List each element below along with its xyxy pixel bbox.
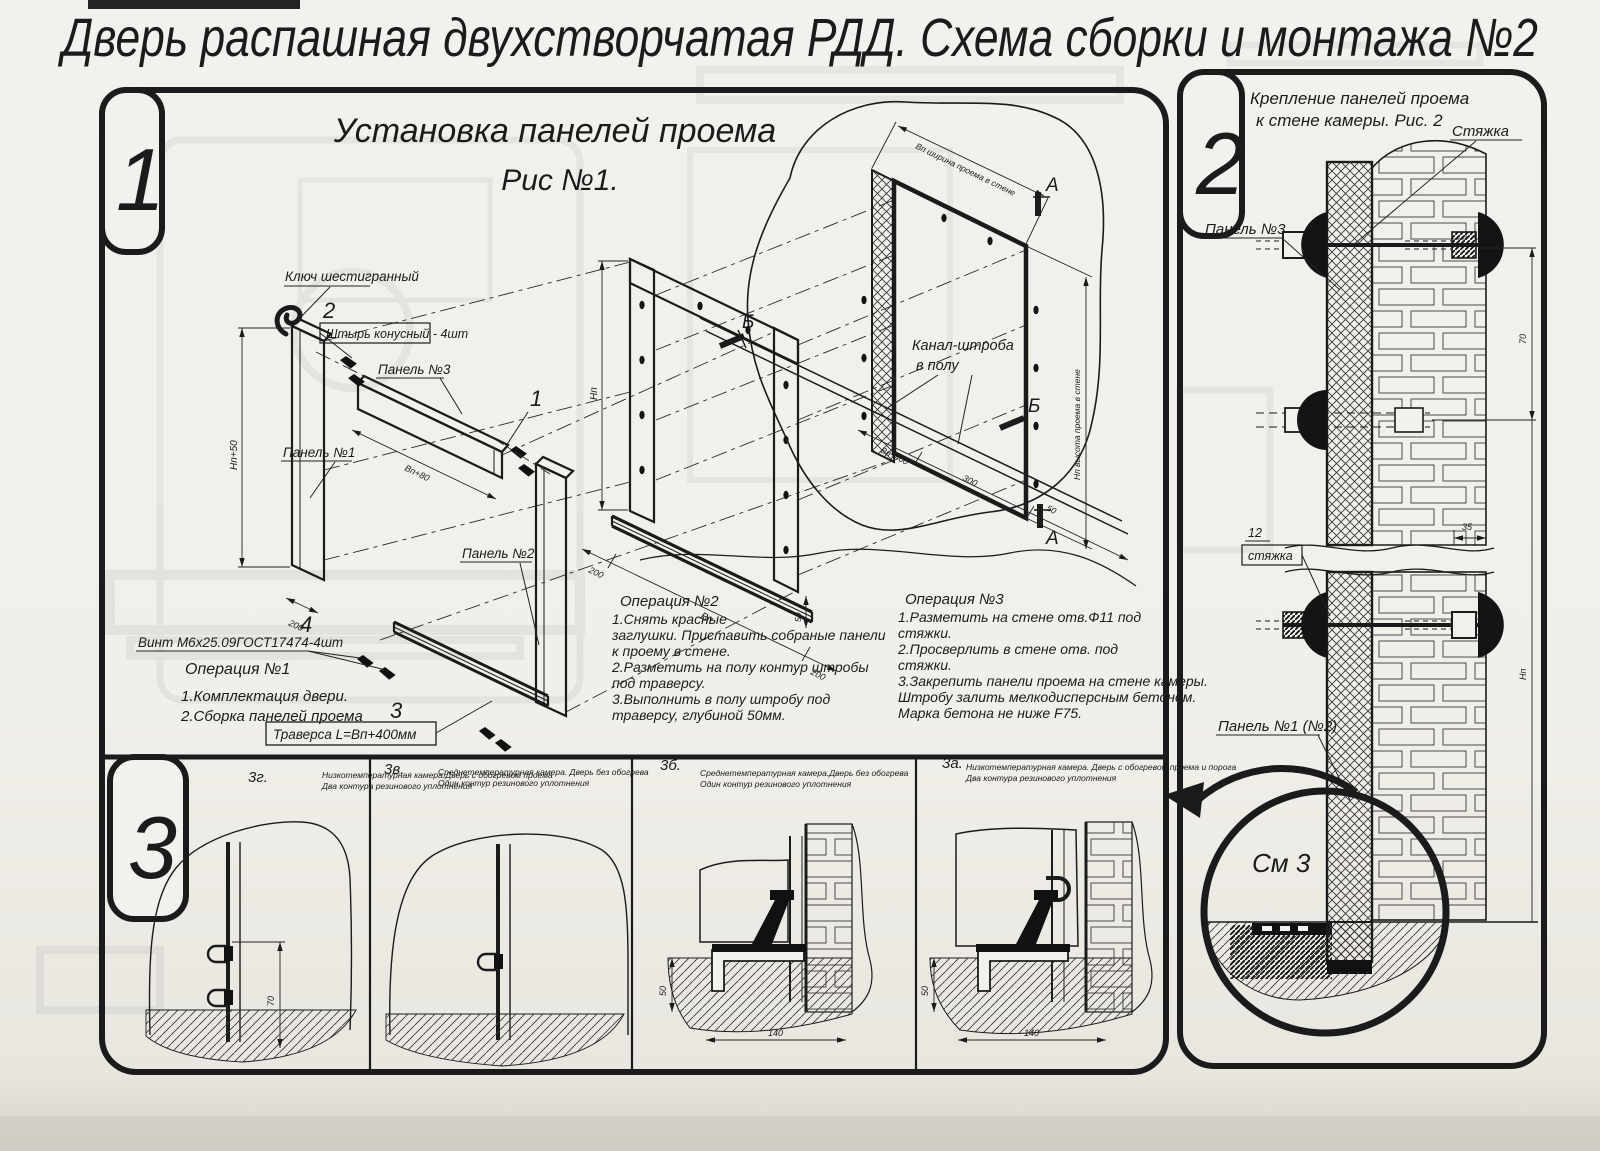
svg-text:3: 3 — [390, 698, 403, 723]
fig3-cell-b: 50 140 — [658, 824, 872, 1040]
svg-text:35: 35 — [1462, 522, 1473, 532]
svg-text:140: 140 — [1024, 1028, 1039, 1038]
fig1-subtitle: Рис №1. — [501, 164, 619, 197]
svg-text:Нп: Нп — [589, 387, 600, 400]
panel2-part — [536, 457, 573, 716]
svg-text:стяжки.: стяжки. — [898, 657, 952, 673]
floor-channel: Канал-штроба в полу — [700, 318, 1128, 534]
svg-text:2.Сборка панелей проема: 2.Сборка панелей проема — [180, 708, 363, 725]
svg-text:Стяжка: Стяжка — [1452, 123, 1509, 140]
svg-text:Штырь конусный - 4шт: Штырь конусный - 4шт — [326, 327, 468, 341]
svg-text:Винт М6х25.09ГОСТ17474-4шт: Винт М6х25.09ГОСТ17474-4шт — [138, 635, 343, 650]
operation-1-block: Операция №1 1.Комплектация двери. 2.Сбор… — [180, 661, 363, 725]
svg-text:3б.: 3б. — [660, 757, 681, 774]
marker-b2: Б — [1028, 396, 1040, 417]
svg-text:1: 1 — [116, 130, 165, 229]
svg-text:к проему в стене.: к проему в стене. — [612, 643, 731, 659]
marker-b1: Б — [742, 312, 754, 333]
svg-text:стяжки.: стяжки. — [898, 625, 952, 641]
svg-text:Операция №1: Операция №1 — [185, 661, 290, 678]
svg-text:3г.: 3г. — [248, 769, 268, 786]
svg-text:под траверсу.: под траверсу. — [612, 675, 706, 691]
svg-text:Панель №3: Панель №3 — [1205, 221, 1286, 238]
svg-text:1.Снять красные: 1.Снять красные — [612, 611, 727, 627]
svg-text:Среднетемпературная камера. Дв: Среднетемпературная камера. Дверь без об… — [438, 767, 649, 777]
fig3-headers: 3г. Низкотемпературная камера.Дверь с об… — [248, 755, 1237, 791]
svg-text:1.Комплектация двери.: 1.Комплектация двери. — [181, 688, 348, 705]
panel3-part — [358, 376, 508, 478]
svg-text:50: 50 — [793, 612, 803, 622]
svg-text:2.Просверлить в стене отв. по: 2.Просверлить в стене отв. под — [897, 641, 1118, 657]
svg-text:Операция №2: Операция №2 — [620, 593, 719, 610]
svg-text:1: 1 — [530, 386, 542, 411]
svg-text:в полу: в полу — [916, 358, 959, 374]
svg-text:стяжка: стяжка — [1248, 549, 1293, 563]
wall-opening-view: Канал-штроба в полу Вп ширина проема в с… — [640, 102, 1136, 586]
figure-3: 3г. Низкотемпературная камера.Дверь с об… — [146, 755, 1237, 1070]
svg-text:50: 50 — [920, 986, 930, 996]
figure-1-badge: 1 — [102, 90, 165, 252]
svg-text:Штробу залить мелкодисперсным: Штробу залить мелкодисперсным бетоном. — [898, 689, 1196, 705]
operation-3-block: Операция №3 1.Разметить на стене отв.Ф11… — [897, 591, 1208, 721]
svg-text:3: 3 — [128, 798, 177, 897]
svg-text:Канал-штроба: Канал-штроба — [912, 338, 1014, 354]
svg-text:3а.: 3а. — [942, 755, 963, 772]
marker-a2: А — [1045, 528, 1059, 549]
detail-arrow-head — [1164, 782, 1204, 818]
svg-text:1.Разметить на стене отв.Ф11 п: 1.Разметить на стене отв.Ф11 под — [898, 609, 1141, 625]
break-lines — [1285, 545, 1494, 575]
svg-text:12: 12 — [1248, 526, 1262, 540]
svg-text:Нп: Нп — [1518, 669, 1528, 680]
svg-text:2: 2 — [322, 298, 335, 323]
fig3-cell-v — [386, 834, 628, 1066]
fig1-title: Установка панелей проема — [333, 112, 776, 150]
svg-text:70: 70 — [266, 996, 276, 1006]
svg-text:Панель №1 (№2): Панель №1 (№2) — [1218, 718, 1337, 735]
fig3-cell-a: 50 140 — [920, 822, 1152, 1040]
svg-text:Низкотемпературная камера. Две: Низкотемпературная камера. Дверь с обогр… — [966, 762, 1237, 772]
fig2-title1: Крепление панелей проема — [1250, 89, 1469, 108]
sheet-title: Дверь распашная двухстворчатая РДД. Схем… — [58, 8, 1538, 68]
svg-text:3.Закрепить панели проема на с: 3.Закрепить панели проема на стене камер… — [898, 673, 1208, 689]
svg-text:Один контур резинового уплотне: Один контур резинового уплотнения — [700, 779, 852, 789]
svg-text:Вп ширина проема в стене: Вп ширина проема в стене — [914, 141, 1017, 198]
svg-text:Ключ шестигранный: Ключ шестигранный — [285, 269, 419, 284]
svg-text:Панель №2: Панель №2 — [462, 546, 535, 561]
svg-text:Операция №3: Операция №3 — [905, 591, 1004, 608]
svg-text:Нп высота проема в стене: Нп высота проема в стене — [1072, 369, 1082, 480]
svg-text:Панель №3: Панель №3 — [378, 362, 451, 377]
figure-2-badge: 2 — [1180, 72, 1245, 236]
svg-text:Один контур резинового уплотне: Один контур резинового уплотнения — [438, 778, 590, 788]
svg-text:траверсу, глубиной 50мм.: траверсу, глубиной 50мм. — [612, 707, 786, 723]
fig2-title2: к стене камеры. Рис. 2 — [1256, 111, 1443, 130]
marker-a1: А — [1045, 175, 1059, 196]
exploded-dims: Нп+50 200 Вп+80 — [229, 328, 496, 633]
frame-holes — [639, 301, 788, 554]
figure-2: Крепление панелей проема к стене камеры.… — [1164, 89, 1538, 1033]
svg-text:Панель №1: Панель №1 — [283, 445, 355, 460]
exploded-view: Ключ шестигранный 2 Штырь конусный - 4шт… — [136, 269, 573, 753]
svg-text:Траверса L=Bп+400мм: Траверса L=Bп+400мм — [273, 727, 416, 742]
svg-text:заглушки. Приставить собраные: заглушки. Приставить собраные панели — [611, 627, 886, 643]
svg-text:70: 70 — [1518, 334, 1528, 344]
svg-text:50: 50 — [658, 986, 668, 996]
svg-text:Два контура резинового уплотне: Два контура резинового уплотнения — [965, 773, 1117, 783]
svg-text:2: 2 — [1195, 114, 1245, 213]
svg-text:140: 140 — [768, 1028, 783, 1038]
figure-3-badge: 3 — [110, 757, 186, 919]
svg-text:Нп+50: Нп+50 — [229, 440, 240, 470]
svg-text:3.Выполнить в полу штробу под: 3.Выполнить в полу штробу под — [612, 691, 830, 707]
scanned-drawing-sheet: Дверь распашная двухстворчатая РДД. Схем… — [0, 0, 1600, 1151]
operation-2-block: Операция №2 1.Снять красные заглушки. Пр… — [611, 593, 886, 723]
svg-text:Марка бетона не ниже F75.: Марка бетона не ниже F75. — [898, 705, 1082, 721]
traverse-bracket — [976, 890, 1070, 952]
svg-text:Среднетемпературная камера.Две: Среднетемпературная камера.Дверь без обо… — [700, 768, 909, 778]
svg-text:3в.: 3в. — [384, 761, 404, 778]
svg-text:2.Разметить на полу контур штр: 2.Разметить на полу контур штробы — [611, 659, 869, 675]
detail-label: См 3 — [1252, 848, 1311, 878]
